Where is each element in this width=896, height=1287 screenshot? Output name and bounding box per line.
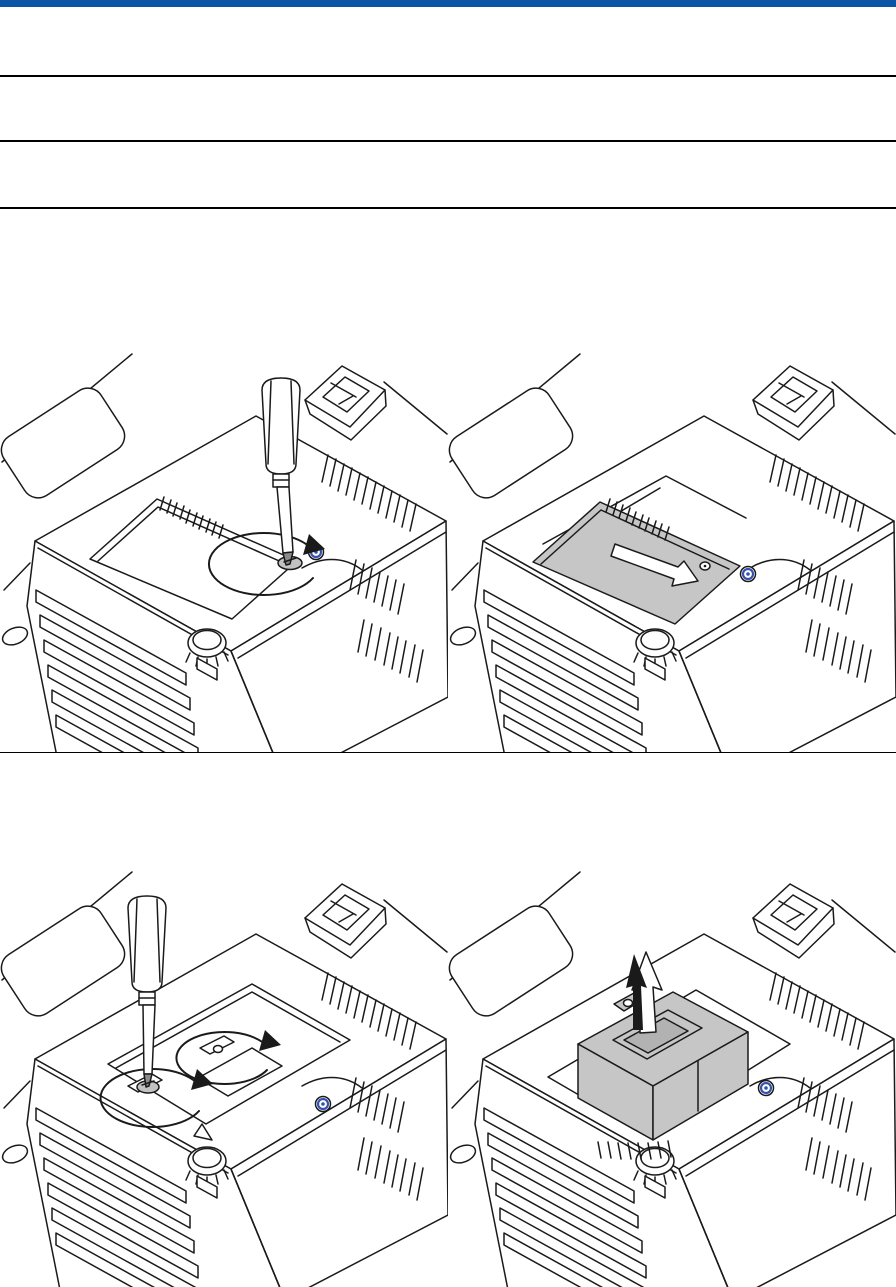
figure-lift-lamp-housing xyxy=(448,870,896,1287)
projector-illustration xyxy=(0,870,448,1287)
manual-page: { "header": { "bar_color": "#0b54a6", "b… xyxy=(0,0,896,1287)
illustration-row-top xyxy=(0,352,896,752)
blue-screw-icon xyxy=(316,1097,331,1112)
figure-loosen-cover-screw xyxy=(0,352,448,752)
figure-slide-cover xyxy=(448,352,896,752)
blue-screw-icon xyxy=(759,1081,774,1096)
blue-screw-icon xyxy=(741,567,756,582)
figure-loosen-lamp-screws xyxy=(0,870,448,1287)
illustration-row-bottom xyxy=(0,870,896,1287)
row-divider-rule xyxy=(0,752,896,753)
horizontal-rule xyxy=(0,207,896,209)
header-bar xyxy=(0,0,896,7)
projector-illustration xyxy=(0,352,448,752)
projector-illustration xyxy=(448,352,896,752)
horizontal-rule xyxy=(0,140,896,142)
horizontal-rule xyxy=(0,75,896,77)
projector-illustration xyxy=(448,870,896,1287)
